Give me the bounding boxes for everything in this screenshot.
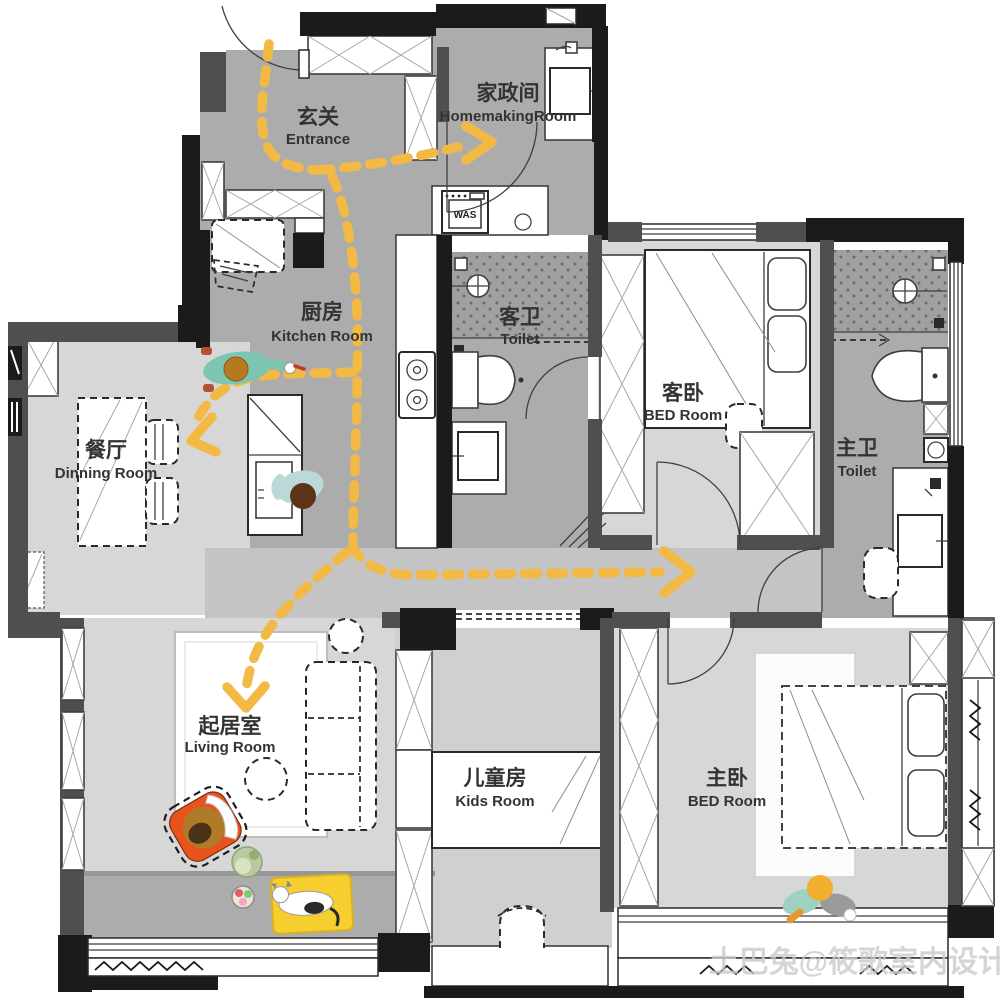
master-toilet-stool [864, 548, 898, 598]
entrance-hall-cabinet [405, 76, 437, 160]
label-guest-toilet-en: Toilet [501, 331, 540, 348]
label-master-bedroom-zh: 主卧 [706, 767, 748, 790]
right-bay-strip [962, 618, 994, 906]
sofa [306, 662, 376, 830]
master-laundry-box [924, 404, 948, 462]
label-homemaking-en: HomemakingRoom [440, 108, 577, 125]
shower-valve-icon-m [933, 258, 945, 270]
kids-sliding-door [456, 610, 580, 622]
guest-bedroom-window [640, 224, 758, 240]
kids-chair [500, 906, 544, 948]
dining-chair-2 [146, 478, 178, 524]
label-entrance-zh: 玄关 [297, 105, 339, 129]
master-vanity [893, 468, 948, 616]
side-table-round [329, 619, 363, 653]
label-master-toilet-en: Toilet [838, 463, 877, 480]
entrance-side-cabinet [202, 162, 224, 220]
label-living-en: Living Room [185, 739, 276, 756]
dining-floor-lower [28, 548, 205, 615]
label-kids-en: Kids Room [455, 793, 534, 810]
label-living-zh: 起居室 [198, 714, 262, 738]
pet-mat [271, 874, 354, 934]
label-kids-zh: 儿童房 [464, 766, 527, 790]
shower-valve-icon [455, 258, 467, 270]
label-dining-zh: 餐厅 [85, 438, 127, 462]
washing-machine: WAS [432, 186, 548, 235]
guest-wardrobe [600, 255, 644, 513]
kitchen-counter-right [396, 235, 437, 548]
floor-plan-canvas: WAS [0, 0, 1000, 1000]
guest-corner-closet [740, 432, 814, 542]
valve-icon-m [934, 318, 944, 328]
label-kitchen-en: Kitchen Room [271, 328, 373, 345]
master-toilet-window [950, 262, 962, 446]
homemaking-top-window [546, 8, 576, 24]
master-corner-closet [910, 632, 948, 684]
label-master-toilet-zh: 主卫 [836, 437, 878, 460]
master-bed [782, 686, 946, 848]
label-guest-toilet-zh: 客卫 [499, 305, 541, 329]
watermark: 土巴兔@筱歌室内设计 [709, 945, 1000, 979]
pet-bowl [232, 886, 254, 908]
kids-wardrobe [396, 650, 432, 942]
gas-stove [399, 352, 435, 418]
master-wardrobe [620, 628, 658, 906]
label-master-bedroom-en: BED Room [688, 793, 766, 810]
coffee-table-round [245, 758, 287, 800]
label-dining-en: Dinning Room [55, 465, 157, 482]
label-guest-bedroom-zh: 客卧 [662, 381, 704, 405]
label-entrance-en: Entrance [286, 131, 350, 148]
guest-vanity [452, 422, 506, 494]
label-homemaking-zh: 家政间 [477, 81, 540, 105]
plant-pot [232, 847, 262, 877]
label-kitchen-zh: 厨房 [301, 300, 343, 324]
dining-chair [146, 420, 178, 464]
label-guest-bedroom-en: BED Room [644, 407, 722, 424]
entrance-shoe-cabinet [308, 36, 432, 74]
balcony-window [88, 938, 378, 976]
kitchen-tall-cabinet [248, 395, 302, 535]
living-left-windows [62, 628, 84, 870]
